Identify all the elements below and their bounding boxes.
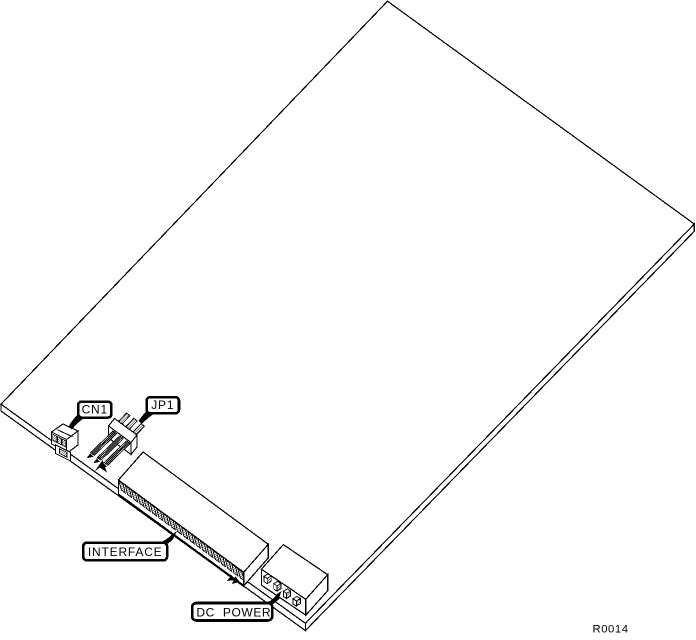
svg-text:INTERFACE: INTERFACE	[88, 545, 163, 559]
svg-text:CN1: CN1	[82, 403, 108, 417]
svg-text:JP1: JP1	[151, 398, 174, 412]
svg-text:DC POWER: DC POWER	[196, 605, 271, 619]
svg-text:R0014: R0014	[593, 624, 629, 636]
